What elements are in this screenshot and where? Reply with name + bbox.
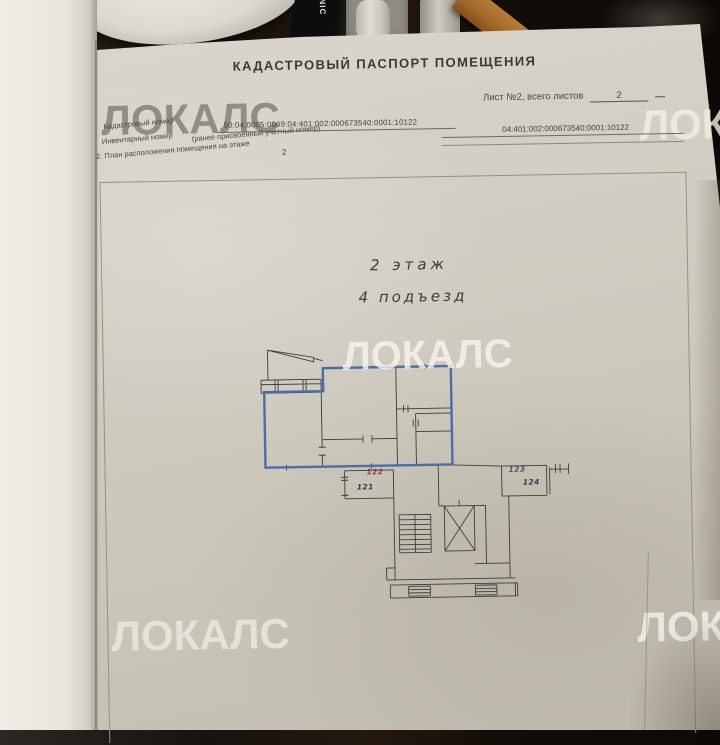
room-number-123: 123 — [509, 465, 526, 474]
corner-shadow — [630, 620, 720, 730]
watermark: ЛОКАЛС — [342, 332, 513, 380]
field-value-floor: 2 — [282, 148, 287, 157]
sheet-info-underline — [655, 96, 665, 97]
paper-edge-shadow — [694, 180, 720, 600]
entrance-label: 4 подъезд — [358, 287, 467, 307]
apartment-outline — [264, 366, 453, 468]
sheet-info-value: 2 — [590, 89, 648, 102]
document-content: ЛОКАЛС ЛОКАЛС КАДАСТРОВЫЙ ПАСПОРТ ПОМЕЩЕ… — [0, 0, 720, 737]
sheet-info: Лист №2, всего листов 2 — [483, 89, 665, 104]
room-number-121: 121 — [357, 482, 374, 491]
page-title: КАДАСТРОВЫЙ ПАСПОРТ ПОМЕЩЕНИЯ — [0, 49, 720, 78]
watermark: ЛОКАЛС — [111, 610, 290, 661]
floor-label: 2 этаж — [370, 255, 448, 274]
room-number-124: 124 — [523, 477, 540, 486]
sheet-info-label: Лист №2, всего листов — [483, 91, 584, 104]
room-number-122: 122 — [367, 467, 384, 476]
